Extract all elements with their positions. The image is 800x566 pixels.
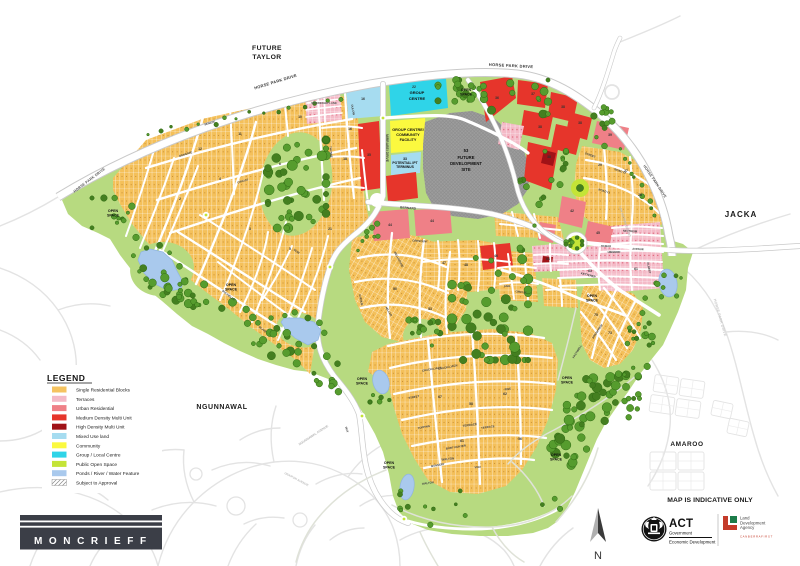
svg-text:MAP IS INDICATIVE ONLY: MAP IS INDICATIVE ONLY (667, 497, 753, 504)
svg-text:LEGEND: LEGEND (47, 373, 85, 383)
svg-text:N: N (594, 550, 602, 562)
svg-text:OPEN: OPEN (384, 461, 395, 465)
svg-text:C A N B E R R A F I R S T: C A N B E R R A F I R S T (740, 535, 773, 539)
svg-text:47: 47 (442, 261, 446, 265)
svg-text:29: 29 (598, 163, 602, 167)
svg-text:45: 45 (596, 231, 600, 235)
svg-text:SPACE: SPACE (460, 93, 473, 97)
svg-text:OPEN: OPEN (108, 209, 119, 213)
svg-text:38: 38 (538, 125, 542, 129)
svg-text:HIBBERD: HIBBERD (608, 250, 621, 254)
svg-text:50: 50 (393, 287, 397, 291)
svg-text:SCHWEIGER LANE: SCHWEIGER LANE (311, 101, 337, 105)
svg-text:16: 16 (348, 127, 352, 131)
svg-text:37: 37 (531, 92, 535, 96)
svg-text:SPACE: SPACE (586, 299, 599, 303)
svg-text:FUTURE: FUTURE (252, 45, 282, 52)
svg-text:Public Open Space: Public Open Space (76, 462, 117, 468)
svg-text:4: 4 (219, 177, 221, 181)
svg-text:SPACE: SPACE (383, 466, 396, 470)
svg-text:HAMAR: HAMAR (601, 244, 612, 248)
svg-text:12: 12 (198, 147, 202, 151)
svg-text:38: 38 (561, 105, 565, 109)
svg-text:Mixed Use land: Mixed Use land (76, 434, 109, 440)
svg-text:64: 64 (546, 257, 550, 261)
svg-text:SPACE: SPACE (561, 381, 574, 385)
svg-text:GROUP: GROUP (410, 90, 425, 95)
svg-text:67: 67 (438, 395, 442, 399)
svg-text:LINE: LINE (504, 284, 511, 288)
svg-text:OPEN: OPEN (551, 453, 562, 457)
svg-text:28: 28 (638, 193, 642, 197)
svg-text:Single Residential Blocks: Single Residential Blocks (76, 388, 130, 394)
svg-text:SPACE: SPACE (356, 382, 369, 386)
svg-text:NGUNNAWAL: NGUNNAWAL (196, 404, 247, 411)
svg-text:AMAROO: AMAROO (670, 441, 703, 448)
svg-text:FUTURE: FUTURE (458, 155, 475, 160)
svg-text:OPEN: OPEN (357, 377, 368, 381)
svg-text:Community: Community (76, 443, 101, 449)
svg-text:JACKA: JACKA (725, 210, 758, 219)
svg-text:36: 36 (495, 96, 499, 100)
svg-text:VIDA: VIDA (474, 465, 481, 470)
svg-text:High Density Multi Unit: High Density Multi Unit (76, 425, 125, 431)
svg-text:22: 22 (412, 85, 416, 89)
svg-text:Ponds / River / Water Feature: Ponds / River / Water Feature (76, 471, 140, 477)
svg-text:M O N C R I E F F: M O N C R I E F F (34, 536, 148, 547)
svg-text:ACT: ACT (669, 518, 693, 530)
svg-text:53: 53 (464, 148, 469, 153)
svg-text:21: 21 (328, 227, 332, 231)
svg-text:56: 56 (518, 437, 522, 441)
svg-text:39: 39 (608, 133, 612, 137)
svg-text:5: 5 (289, 247, 291, 251)
svg-text:18: 18 (343, 157, 347, 161)
svg-text:42: 42 (570, 209, 574, 213)
svg-text:SPACE: SPACE (107, 214, 120, 218)
svg-text:16: 16 (361, 97, 365, 101)
svg-text:OPEN: OPEN (562, 376, 573, 380)
svg-text:10: 10 (298, 115, 302, 119)
svg-text:TAYLOR: TAYLOR (252, 54, 281, 61)
svg-text:GROUP CENTRE/: GROUP CENTRE/ (392, 128, 425, 132)
svg-text:Group / Local Centre: Group / Local Centre (76, 453, 121, 459)
svg-text:73: 73 (608, 331, 612, 335)
svg-text:2: 2 (179, 197, 181, 201)
svg-text:Terraces: Terraces (76, 397, 95, 403)
svg-text:58: 58 (469, 402, 473, 406)
svg-text:OPEN: OPEN (226, 283, 237, 287)
svg-text:38: 38 (578, 121, 582, 125)
svg-text:48: 48 (464, 263, 468, 267)
svg-text:6: 6 (279, 162, 281, 166)
svg-text:OPEN: OPEN (461, 88, 472, 92)
svg-text:COMMUNITY: COMMUNITY (396, 133, 420, 137)
svg-text:3: 3 (249, 227, 251, 231)
svg-text:SITE: SITE (461, 167, 471, 172)
svg-text:44: 44 (430, 219, 434, 223)
svg-text:46: 46 (494, 254, 498, 258)
svg-text:27: 27 (624, 169, 628, 173)
svg-text:63: 63 (588, 269, 592, 273)
svg-text:Agency: Agency (740, 525, 755, 530)
svg-text:Government: Government (669, 531, 693, 536)
svg-text:Urban Residential: Urban Residential (76, 406, 114, 412)
svg-text:MIRRABEI DRIVE: MIRRABEI DRIVE (385, 134, 389, 163)
svg-text:AVENUE: AVENUE (632, 247, 644, 251)
svg-text:61: 61 (634, 267, 638, 271)
svg-text:11: 11 (238, 132, 242, 136)
svg-text:OPEN: OPEN (587, 294, 598, 298)
svg-text:FACILITY: FACILITY (400, 138, 417, 142)
svg-text:38: 38 (547, 155, 551, 159)
svg-text:61: 61 (460, 439, 464, 443)
svg-text:53: 53 (428, 307, 432, 311)
svg-text:Economic Development: Economic Development (669, 540, 716, 545)
svg-text:Subject to Approval: Subject to Approval (76, 481, 117, 487)
svg-text:75: 75 (594, 313, 598, 317)
svg-text:TERMINUS: TERMINUS (396, 165, 414, 169)
svg-text:SPACE: SPACE (550, 458, 563, 462)
svg-text:35: 35 (367, 153, 371, 157)
svg-text:44: 44 (388, 223, 392, 227)
svg-text:62: 62 (503, 392, 507, 396)
svg-text:CENTRE: CENTRE (409, 96, 426, 101)
svg-text:Medium Density Multi Unit: Medium Density Multi Unit (76, 415, 132, 421)
svg-text:DEVELOPMENT: DEVELOPMENT (450, 161, 482, 166)
